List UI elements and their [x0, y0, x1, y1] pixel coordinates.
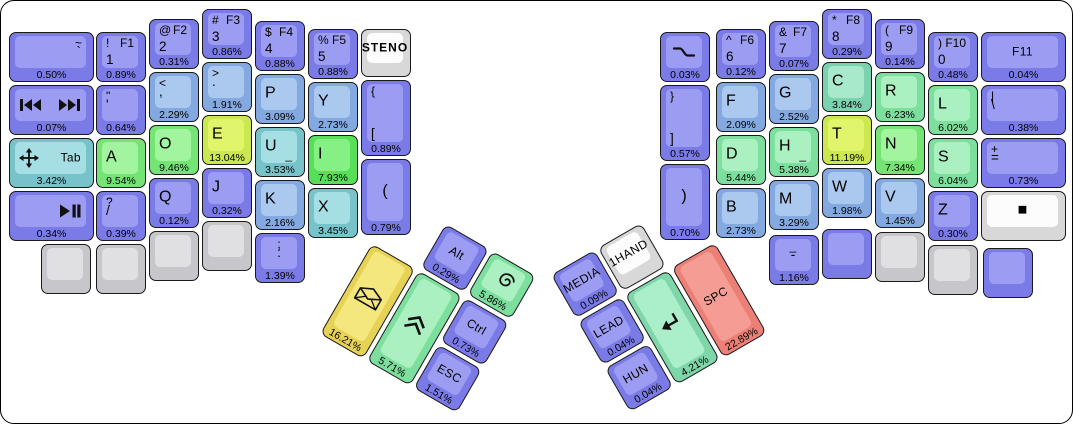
key-2-legend: F2: [173, 24, 187, 37]
key-j[interactable]: J0.32%: [202, 168, 252, 218]
key-quote-surface: "': [102, 89, 138, 121]
key-u-legend: U: [265, 139, 277, 156]
media-next-icon: [57, 98, 81, 112]
key-9-legend: F9: [899, 24, 913, 37]
key-b-usage-pct: 2.73%: [717, 225, 765, 238]
key-left-paren[interactable]: (0.79%: [361, 159, 411, 235]
key-f11-surface: F11: [987, 36, 1058, 68]
key-tab-legend: Tab: [60, 152, 81, 165]
key-g[interactable]: G2.52%: [769, 74, 819, 124]
key-m-legend: M: [779, 192, 792, 209]
key-o-legend: O: [159, 137, 171, 154]
key-q[interactable]: Q0.12%: [149, 178, 199, 228]
key-right-bracket-surface: }]: [666, 89, 702, 147]
key-x[interactable]: X3.45%: [308, 188, 358, 238]
key-period-usage-pct: 1.91%: [203, 99, 251, 112]
blank-key-r2[interactable]: [875, 232, 925, 282]
key-7[interactable]: &F770.07%: [769, 21, 819, 71]
key-right-paren-surface: ): [666, 168, 702, 226]
key-play-pause-usage-pct: 0.34%: [10, 228, 93, 241]
key-j-surface: J: [208, 172, 244, 204]
blank-key-r1[interactable]: [822, 229, 872, 279]
key-c-legend: C: [832, 74, 844, 91]
key-u[interactable]: U_3.53%: [255, 127, 305, 177]
key-8-surface: *F88: [828, 13, 864, 45]
key-slash-legend: /: [106, 204, 110, 218]
key-7-surface: &F77: [775, 25, 811, 57]
key-right-bracket-legend: ]: [670, 132, 674, 146]
key-equals-usage-pct: 0.73%: [982, 175, 1065, 188]
key-y-usage-pct: 2.73%: [309, 119, 357, 132]
key-boot-surface: ■: [987, 195, 1058, 227]
key-9-surface: (F99: [881, 23, 917, 55]
key-slash-surface: ?/: [102, 195, 138, 227]
key-d-legend: D: [726, 147, 738, 164]
key-2-usage-pct: 0.31%: [150, 56, 198, 69]
key-q-surface: Q: [155, 182, 191, 214]
key-media-prev-next-usage-pct: 0.07%: [10, 122, 93, 135]
key-backslash-surface: |\: [987, 89, 1058, 121]
key-u-surface: U_: [261, 131, 297, 163]
key-0-legend: ): [938, 37, 942, 50]
key-5-legend: 5: [318, 50, 326, 64]
key-0-legend: 0: [938, 53, 946, 67]
key-backslash-legend: \: [991, 98, 995, 112]
key-grave-tilde-usage-pct: 0.50%: [10, 69, 93, 82]
key-slash[interactable]: ?/0.39%: [96, 191, 146, 241]
key-left-bracket[interactable]: {[0.89%: [361, 80, 411, 156]
key-backslash-usage-pct: 0.38%: [982, 122, 1065, 135]
blank-key-r2-surface: [881, 236, 917, 268]
key-7-usage-pct: 0.07%: [770, 58, 818, 71]
blank-key-l4[interactable]: [202, 221, 252, 271]
key-e-usage-pct: 13.04%: [203, 152, 251, 165]
key-tab-surface: Tab: [15, 142, 86, 174]
key-step-down[interactable]: 0.03%: [660, 32, 710, 82]
key-media-prev-next[interactable]: 0.07%: [9, 85, 94, 135]
key-i[interactable]: I7.93%: [308, 135, 358, 185]
chevrons-up-icon: [403, 311, 429, 336]
key-r[interactable]: R6.23%: [875, 72, 925, 122]
key-6-legend: 6: [726, 50, 734, 64]
key-9-usage-pct: 0.14%: [876, 56, 924, 69]
key-a-surface: A: [102, 142, 138, 174]
key-boot[interactable]: ■: [981, 191, 1066, 241]
key-left-paren-usage-pct: 0.79%: [362, 222, 410, 235]
key-h-legend: _: [799, 149, 806, 162]
key-quote[interactable]: "'0.64%: [96, 85, 146, 135]
key-quote-usage-pct: 0.64%: [97, 122, 145, 135]
blank-key-r4-surface: [989, 252, 1025, 284]
key-8-legend: *: [832, 14, 837, 27]
key-5-legend: F5: [332, 34, 346, 47]
key-hun-legend: HUN: [621, 362, 651, 387]
key-left-bracket-surface: {[: [367, 84, 403, 142]
key-m[interactable]: M3.29%: [769, 180, 819, 230]
key-o-usage-pct: 9.46%: [150, 162, 198, 175]
key-comma-legend: ,: [159, 85, 163, 99]
key-3-legend: #: [212, 14, 219, 27]
key-period-surface: >.: [208, 66, 244, 98]
key-semicolon[interactable]: ;:1.39%: [255, 233, 305, 283]
play-pause-icon: [59, 204, 81, 219]
blank-key-r3-surface: [934, 249, 970, 281]
key-5-surface: %F55: [314, 33, 350, 65]
key-7-legend: F7: [793, 26, 807, 39]
key-z-usage-pct: 0.30%: [929, 228, 977, 241]
key-0-surface: )F100: [934, 36, 970, 68]
key-h-legend: H: [779, 139, 791, 156]
key-e[interactable]: E13.04%: [202, 115, 252, 165]
blank-key-r3[interactable]: [928, 245, 978, 295]
key-1hand-surface: 1HAND: [605, 230, 652, 276]
key-b[interactable]: B2.73%: [716, 188, 766, 238]
key-steno-surface: STENO: [367, 33, 403, 63]
key-0-legend: F10: [945, 37, 966, 50]
key-quote-legend: ': [106, 98, 109, 112]
key-i-usage-pct: 7.93%: [309, 172, 357, 185]
key-boot-legend: ■: [1018, 203, 1028, 220]
key-4-legend: F4: [279, 26, 293, 39]
key-4[interactable]: $F440.88%: [255, 21, 305, 71]
key-alt-legend: Alt: [447, 244, 466, 263]
key-h-usage-pct: 5.38%: [770, 164, 818, 177]
key-k-legend: K: [265, 192, 276, 209]
key-lead-legend: LEAD: [591, 313, 626, 340]
key-z[interactable]: Z0.30%: [928, 191, 978, 241]
key-3-surface: #F33: [208, 13, 244, 45]
key-minus[interactable]: _-1.16%: [769, 235, 819, 285]
key-2-legend: 2: [159, 40, 167, 54]
move-icon: [19, 148, 39, 168]
key-1-legend: !: [106, 37, 109, 50]
key-1hand-legend: 1HAND: [607, 237, 650, 269]
key-0[interactable]: )F1000.48%: [928, 32, 978, 82]
key-9-legend: (: [885, 24, 889, 37]
key-f11-legend: F11: [1012, 46, 1033, 59]
key-p[interactable]: P3.09%: [255, 74, 305, 124]
key-s-usage-pct: 6.04%: [929, 175, 977, 188]
blank-key-l3-surface: [155, 235, 191, 267]
key-c[interactable]: C3.84%: [822, 62, 872, 112]
key-grave-tilde-surface: ~`: [15, 36, 86, 68]
key-p-surface: P: [261, 78, 297, 110]
key-equals-legend: =: [991, 151, 999, 165]
key-y[interactable]: Y2.73%: [308, 82, 358, 132]
key-d-usage-pct: 5.44%: [717, 172, 765, 185]
key-step-down-surface: [666, 36, 702, 68]
key-7-legend: &: [779, 26, 787, 39]
key-l-usage-pct: 6.02%: [929, 122, 977, 135]
key-equals-surface: +=: [987, 142, 1058, 174]
key-grave-tilde-legend: `: [77, 45, 82, 59]
key-3-legend: F3: [226, 14, 240, 27]
key-l[interactable]: L6.02%: [928, 85, 978, 135]
key-right-paren[interactable]: )0.70%: [660, 164, 710, 240]
key-period[interactable]: >.1.91%: [202, 62, 252, 112]
key-3-legend: 3: [212, 30, 220, 44]
key-t-legend: T: [832, 127, 842, 144]
key-t-usage-pct: 11.19%: [823, 152, 871, 165]
key-h[interactable]: H_5.38%: [769, 127, 819, 177]
key-p-usage-pct: 3.09%: [256, 111, 304, 124]
key-minus-usage-pct: 1.16%: [770, 272, 818, 285]
key-comma-usage-pct: 2.29%: [150, 109, 198, 122]
key-g-usage-pct: 2.52%: [770, 111, 818, 124]
key-equals[interactable]: +=0.73%: [981, 138, 1066, 188]
key-n-surface: N: [881, 129, 917, 161]
key-v-surface: V: [881, 182, 917, 214]
key-right-bracket-legend: }: [670, 90, 674, 103]
key-u-usage-pct: 3.53%: [256, 164, 304, 177]
key-c-usage-pct: 3.84%: [823, 99, 871, 112]
key-comma[interactable]: <,2.29%: [149, 72, 199, 122]
key-i-legend: I: [318, 147, 322, 164]
key-k-usage-pct: 2.16%: [256, 217, 304, 230]
key-4-legend: $: [265, 26, 272, 39]
key-k[interactable]: K2.16%: [255, 180, 305, 230]
key-step-down-usage-pct: 0.03%: [661, 69, 709, 82]
key-9-legend: 9: [885, 40, 893, 54]
key-4-usage-pct: 0.88%: [256, 58, 304, 71]
key-l-surface: L: [934, 89, 970, 121]
key-s-surface: S: [934, 142, 970, 174]
key-d-surface: D: [722, 139, 758, 171]
key-3[interactable]: #F330.86%: [202, 9, 252, 59]
key-5-legend: %: [318, 34, 329, 47]
key-left-bracket-usage-pct: 0.89%: [362, 143, 410, 156]
key-8-usage-pct: 0.29%: [823, 46, 871, 59]
key-right-paren-legend: ): [681, 189, 686, 206]
key-c-surface: C: [828, 66, 864, 98]
key-f-legend: F: [726, 94, 736, 111]
key-r-usage-pct: 6.23%: [876, 109, 924, 122]
key-m-usage-pct: 3.29%: [770, 217, 818, 230]
key-slash-usage-pct: 0.39%: [97, 228, 145, 241]
key-comma-surface: <,: [155, 76, 191, 108]
key-0-usage-pct: 0.48%: [929, 69, 977, 82]
key-steno-legend: STENO: [362, 42, 408, 55]
key-6-legend: ^: [726, 34, 732, 47]
key-e-surface: E: [208, 119, 244, 151]
key-i-surface: I: [314, 139, 350, 171]
key-tab-usage-pct: 3.42%: [10, 175, 93, 188]
key-5-usage-pct: 0.88%: [309, 66, 357, 79]
key-1-legend: 1: [106, 53, 114, 67]
key-k-surface: K: [261, 184, 297, 216]
key-d[interactable]: D5.44%: [716, 135, 766, 185]
key-j-legend: J: [212, 180, 220, 197]
key-a[interactable]: A9.54%: [96, 138, 146, 188]
key-p-legend: P: [265, 86, 276, 103]
key-6-usage-pct: 0.12%: [717, 66, 765, 79]
key-8-legend: 8: [832, 30, 840, 44]
key-t-surface: T: [828, 119, 864, 151]
blank-key-l4-surface: [208, 225, 244, 257]
key-right-bracket[interactable]: }]0.57%: [660, 85, 710, 161]
key-3-usage-pct: 0.86%: [203, 46, 251, 59]
blank-key-l3[interactable]: [149, 231, 199, 281]
key-x-usage-pct: 3.45%: [309, 225, 357, 238]
key-o-surface: O: [155, 129, 191, 161]
key-esc-legend: ESC: [435, 362, 464, 386]
key-left-paren-surface: (: [367, 163, 403, 221]
key-play-pause-surface: [15, 195, 86, 227]
key-left-bracket-legend: {: [371, 85, 375, 98]
blank-key-l2-surface: [102, 248, 138, 280]
key-h-surface: H_: [775, 131, 811, 163]
key-t[interactable]: T11.19%: [822, 115, 872, 165]
key-spc-legend: SPC: [701, 285, 730, 309]
key-q-legend: Q: [159, 190, 171, 207]
key-steno[interactable]: STENO: [361, 29, 411, 77]
key-v-usage-pct: 1.45%: [876, 215, 924, 228]
key-x-legend: X: [318, 200, 329, 217]
key-minus-surface: _-: [775, 239, 811, 271]
key-2-legend: @: [159, 24, 171, 37]
key-v[interactable]: V1.45%: [875, 178, 925, 228]
key-6-legend: F6: [740, 34, 754, 47]
key-s-legend: S: [938, 150, 949, 167]
key-1-usage-pct: 0.89%: [97, 69, 145, 82]
key-2[interactable]: @F220.31%: [149, 19, 199, 69]
key-7-legend: 7: [779, 42, 787, 56]
key-6[interactable]: ^F660.12%: [716, 29, 766, 79]
key-8-legend: F8: [846, 14, 860, 27]
key-l-legend: L: [938, 97, 947, 114]
key-v-legend: V: [885, 190, 896, 207]
key-9[interactable]: (F990.14%: [875, 19, 925, 69]
key-semicolon-legend: :: [277, 246, 281, 260]
media-prev-icon: [19, 98, 43, 112]
key-2-surface: @F22: [155, 23, 191, 55]
key-r-surface: R: [881, 76, 917, 108]
swirl-icon: [489, 266, 518, 295]
key-f[interactable]: F2.09%: [716, 82, 766, 132]
key-6-surface: ^F66: [722, 33, 758, 65]
key-1[interactable]: !F110.89%: [96, 32, 146, 82]
key-f-surface: F: [722, 86, 758, 118]
key-o[interactable]: O9.46%: [149, 125, 199, 175]
key-ctrl-legend: Ctrl: [464, 317, 488, 338]
key-a-usage-pct: 9.54%: [97, 175, 145, 188]
key-minus-legend: -: [791, 248, 796, 262]
key-u-legend: _: [285, 149, 292, 162]
key-q-usage-pct: 0.12%: [150, 215, 198, 228]
key-g-legend: G: [779, 86, 791, 103]
key-media-prev-next-surface: [15, 89, 86, 121]
key-w-usage-pct: 1.98%: [823, 205, 871, 218]
key-b-legend: B: [726, 200, 737, 217]
key-g-surface: G: [775, 78, 811, 110]
key-z-surface: Z: [934, 195, 970, 227]
key-w-surface: W: [828, 172, 864, 204]
key-backslash[interactable]: |\0.38%: [981, 85, 1066, 135]
blank-key-l1[interactable]: [41, 244, 91, 294]
key-j-usage-pct: 0.32%: [203, 205, 251, 218]
key-x-surface: X: [314, 192, 350, 224]
key-s[interactable]: S6.04%: [928, 138, 978, 188]
key-play-pause[interactable]: 0.34%: [9, 191, 94, 241]
key-r-legend: R: [885, 84, 897, 101]
key-8[interactable]: *F880.29%: [822, 9, 872, 59]
key-4-surface: $F44: [261, 25, 297, 57]
key-b-surface: B: [722, 192, 758, 224]
key-tab[interactable]: Tab3.42%: [9, 138, 94, 188]
key-w-legend: W: [832, 180, 847, 197]
mail-icon: [353, 282, 385, 311]
key-a-legend: A: [106, 150, 117, 167]
blank-key-l1-surface: [47, 248, 83, 280]
key-f-usage-pct: 2.09%: [717, 119, 765, 132]
step-down-icon: [672, 46, 696, 58]
key-f11-usage-pct: 0.04%: [982, 69, 1065, 82]
key-n[interactable]: N7.34%: [875, 125, 925, 175]
key-semicolon-usage-pct: 1.39%: [256, 270, 304, 283]
key-f11[interactable]: F110.04%: [981, 32, 1066, 82]
key-m-surface: M: [775, 184, 811, 216]
key-w[interactable]: W1.98%: [822, 168, 872, 218]
key-1-legend: F1: [120, 37, 134, 50]
key-left-bracket-legend: [: [371, 127, 375, 141]
blank-key-r4[interactable]: [983, 248, 1033, 298]
key-5[interactable]: %F550.88%: [308, 29, 358, 79]
blank-key-l2[interactable]: [96, 244, 146, 294]
key-y-legend: Y: [318, 94, 329, 111]
key-1-surface: !F11: [102, 36, 138, 68]
key-period-legend: .: [212, 75, 216, 89]
key-4-legend: 4: [265, 42, 273, 56]
key-left-paren-legend: (: [382, 184, 387, 201]
key-e-legend: E: [212, 127, 223, 144]
key-n-legend: N: [885, 137, 897, 154]
key-right-bracket-usage-pct: 0.57%: [661, 148, 709, 161]
key-grave-tilde[interactable]: ~`0.50%: [9, 32, 94, 82]
key-right-paren-usage-pct: 0.70%: [661, 227, 709, 240]
blank-key-r1-surface: [828, 233, 864, 265]
key-n-usage-pct: 7.34%: [876, 162, 924, 175]
enter-icon: [655, 310, 683, 337]
keyboard-heatmap: Alt0.29%5.86%16.21%5.71%Ctrl0.73%ESC1.51…: [0, 0, 1073, 424]
key-y-surface: Y: [314, 86, 350, 118]
key-semicolon-surface: ;:: [261, 237, 297, 269]
key-z-legend: Z: [938, 203, 948, 220]
